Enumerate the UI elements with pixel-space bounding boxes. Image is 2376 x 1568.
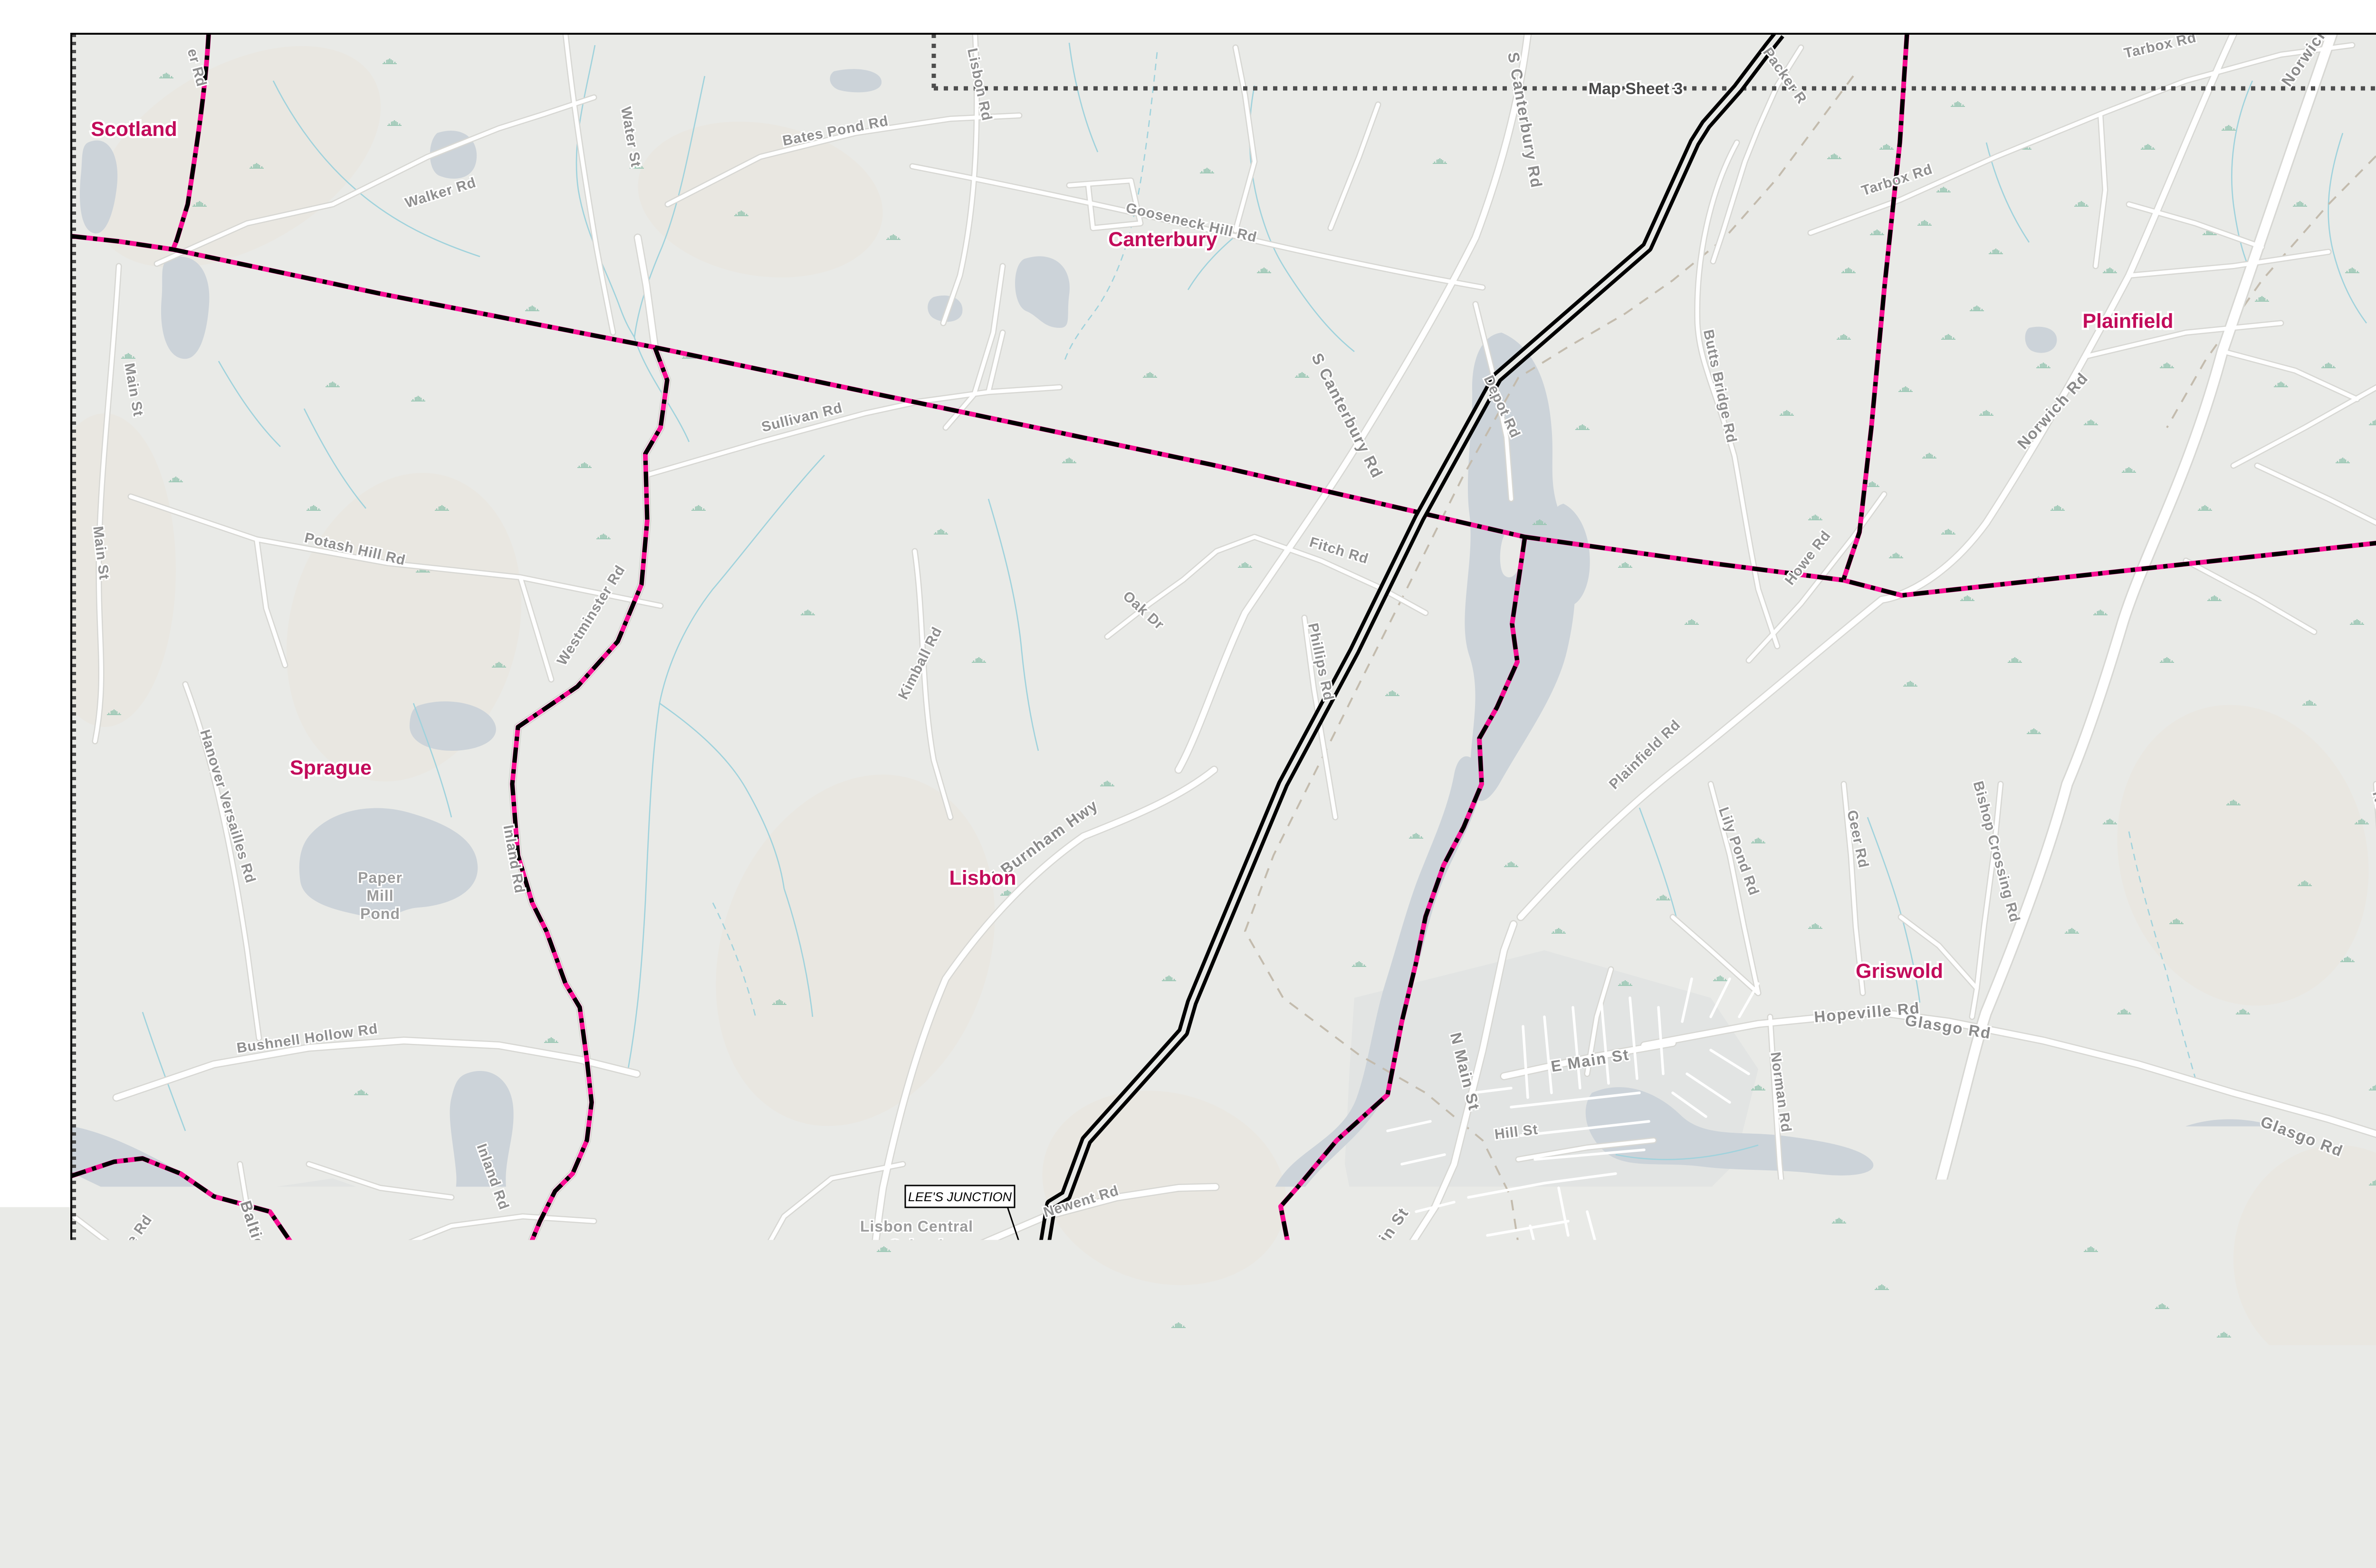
svg-text:1 inch = 2,500 feet: 1 inch = 2,500 feet xyxy=(1056,1419,1202,1439)
svg-text:Plainfield: Plainfield xyxy=(2082,310,2173,333)
svg-text:Lisbon: Lisbon xyxy=(162,1492,188,1501)
svg-text:Pomfret: Pomfret xyxy=(172,1381,203,1390)
svg-text:Brooklyn: Brooklyn xyxy=(172,1414,208,1423)
svg-text:Park: Park xyxy=(2244,1260,2279,1277)
svg-text:Lisbon: Lisbon xyxy=(949,867,1016,889)
svg-text:INDEX MAP: INDEX MAP xyxy=(132,1349,237,1370)
svg-text:1: 1 xyxy=(1268,1472,1278,1491)
svg-text:REVISIONS: REVISIONS xyxy=(1839,1510,1907,1524)
svg-text:0.5: 0.5 xyxy=(1109,1472,1133,1491)
svg-text:0: 0 xyxy=(964,1472,974,1491)
svg-text:LISBON, PLAINFIELD,: LISBON, PLAINFIELD, xyxy=(2037,1467,2183,1483)
svg-text:CT-35 Project: CT-35 Project xyxy=(385,1390,493,1410)
svg-text:School: School xyxy=(890,1237,944,1254)
svg-text:Vegetation Management: Vegetation Management xyxy=(2107,1401,2298,1420)
svg-text:Norwich: Norwich xyxy=(148,1252,229,1274)
svg-text:Preston: Preston xyxy=(164,1522,194,1531)
svg-text:Sprague: Sprague xyxy=(290,756,372,779)
svg-text:LEE'S JUNCTION: LEE'S JUNCTION xyxy=(908,1190,1012,1204)
svg-text:N: N xyxy=(1495,1374,1512,1400)
svg-text:Overview Map Set: Overview Map Set xyxy=(2131,1420,2273,1439)
svg-text:Map Sheet 3: Map Sheet 3 xyxy=(1589,80,1683,98)
svg-text:EVERS: EVERS xyxy=(2119,1342,2193,1367)
svg-text:Mill: Mill xyxy=(366,887,393,904)
svg-text:Pond: Pond xyxy=(360,905,400,922)
svg-text:Paper: Paper xyxy=(358,869,402,886)
svg-text:Canterbury: Canterbury xyxy=(1108,228,1217,251)
svg-text:Griswold: Griswold xyxy=(1856,960,1943,983)
svg-text:Lisbon Central: Lisbon Central xyxy=(860,1218,973,1235)
svg-text:Date: October 23, 2025: Date: October 23, 2025 xyxy=(2033,1508,2221,1528)
svg-text:Pond State: Pond State xyxy=(2220,1241,2304,1258)
svg-text:Scotland: Scotland xyxy=(91,118,177,141)
svg-text:Map Sheet Matchline: Map Sheet Matchline xyxy=(385,1448,550,1467)
svg-text:CT-35: CT-35 xyxy=(2179,1382,2224,1401)
svg-text:Canterbury: Canterbury xyxy=(150,1468,193,1477)
svg-text:Miles: Miles xyxy=(1278,1454,1318,1473)
svg-text:Map Sheet 1: Map Sheet 1 xyxy=(1223,1283,1317,1301)
svg-text:Plainfield: Plainfield xyxy=(191,1447,227,1456)
svg-text:DATE: DATE xyxy=(1691,1510,1723,1524)
svg-text:ENERGY: ENERGY xyxy=(2213,1363,2271,1377)
svg-text:NO.: NO. xyxy=(1657,1510,1679,1524)
svg-text:Legend: Legend xyxy=(326,1351,403,1376)
svg-text:MAP SHEET 2 OF 5: MAP SHEET 2 OF 5 xyxy=(2215,1446,2376,1466)
svg-text:Hopeville: Hopeville xyxy=(2226,1222,2298,1239)
svg-text:AND PRESTON, CT: AND PRESTON, CT xyxy=(2045,1484,2175,1500)
svg-text:BROOKLYN, CANTERBURY,: BROOKLYN, CANTERBURY, xyxy=(2019,1451,2199,1466)
svg-text:Municipal Boundary: Municipal Boundary xyxy=(385,1420,539,1439)
